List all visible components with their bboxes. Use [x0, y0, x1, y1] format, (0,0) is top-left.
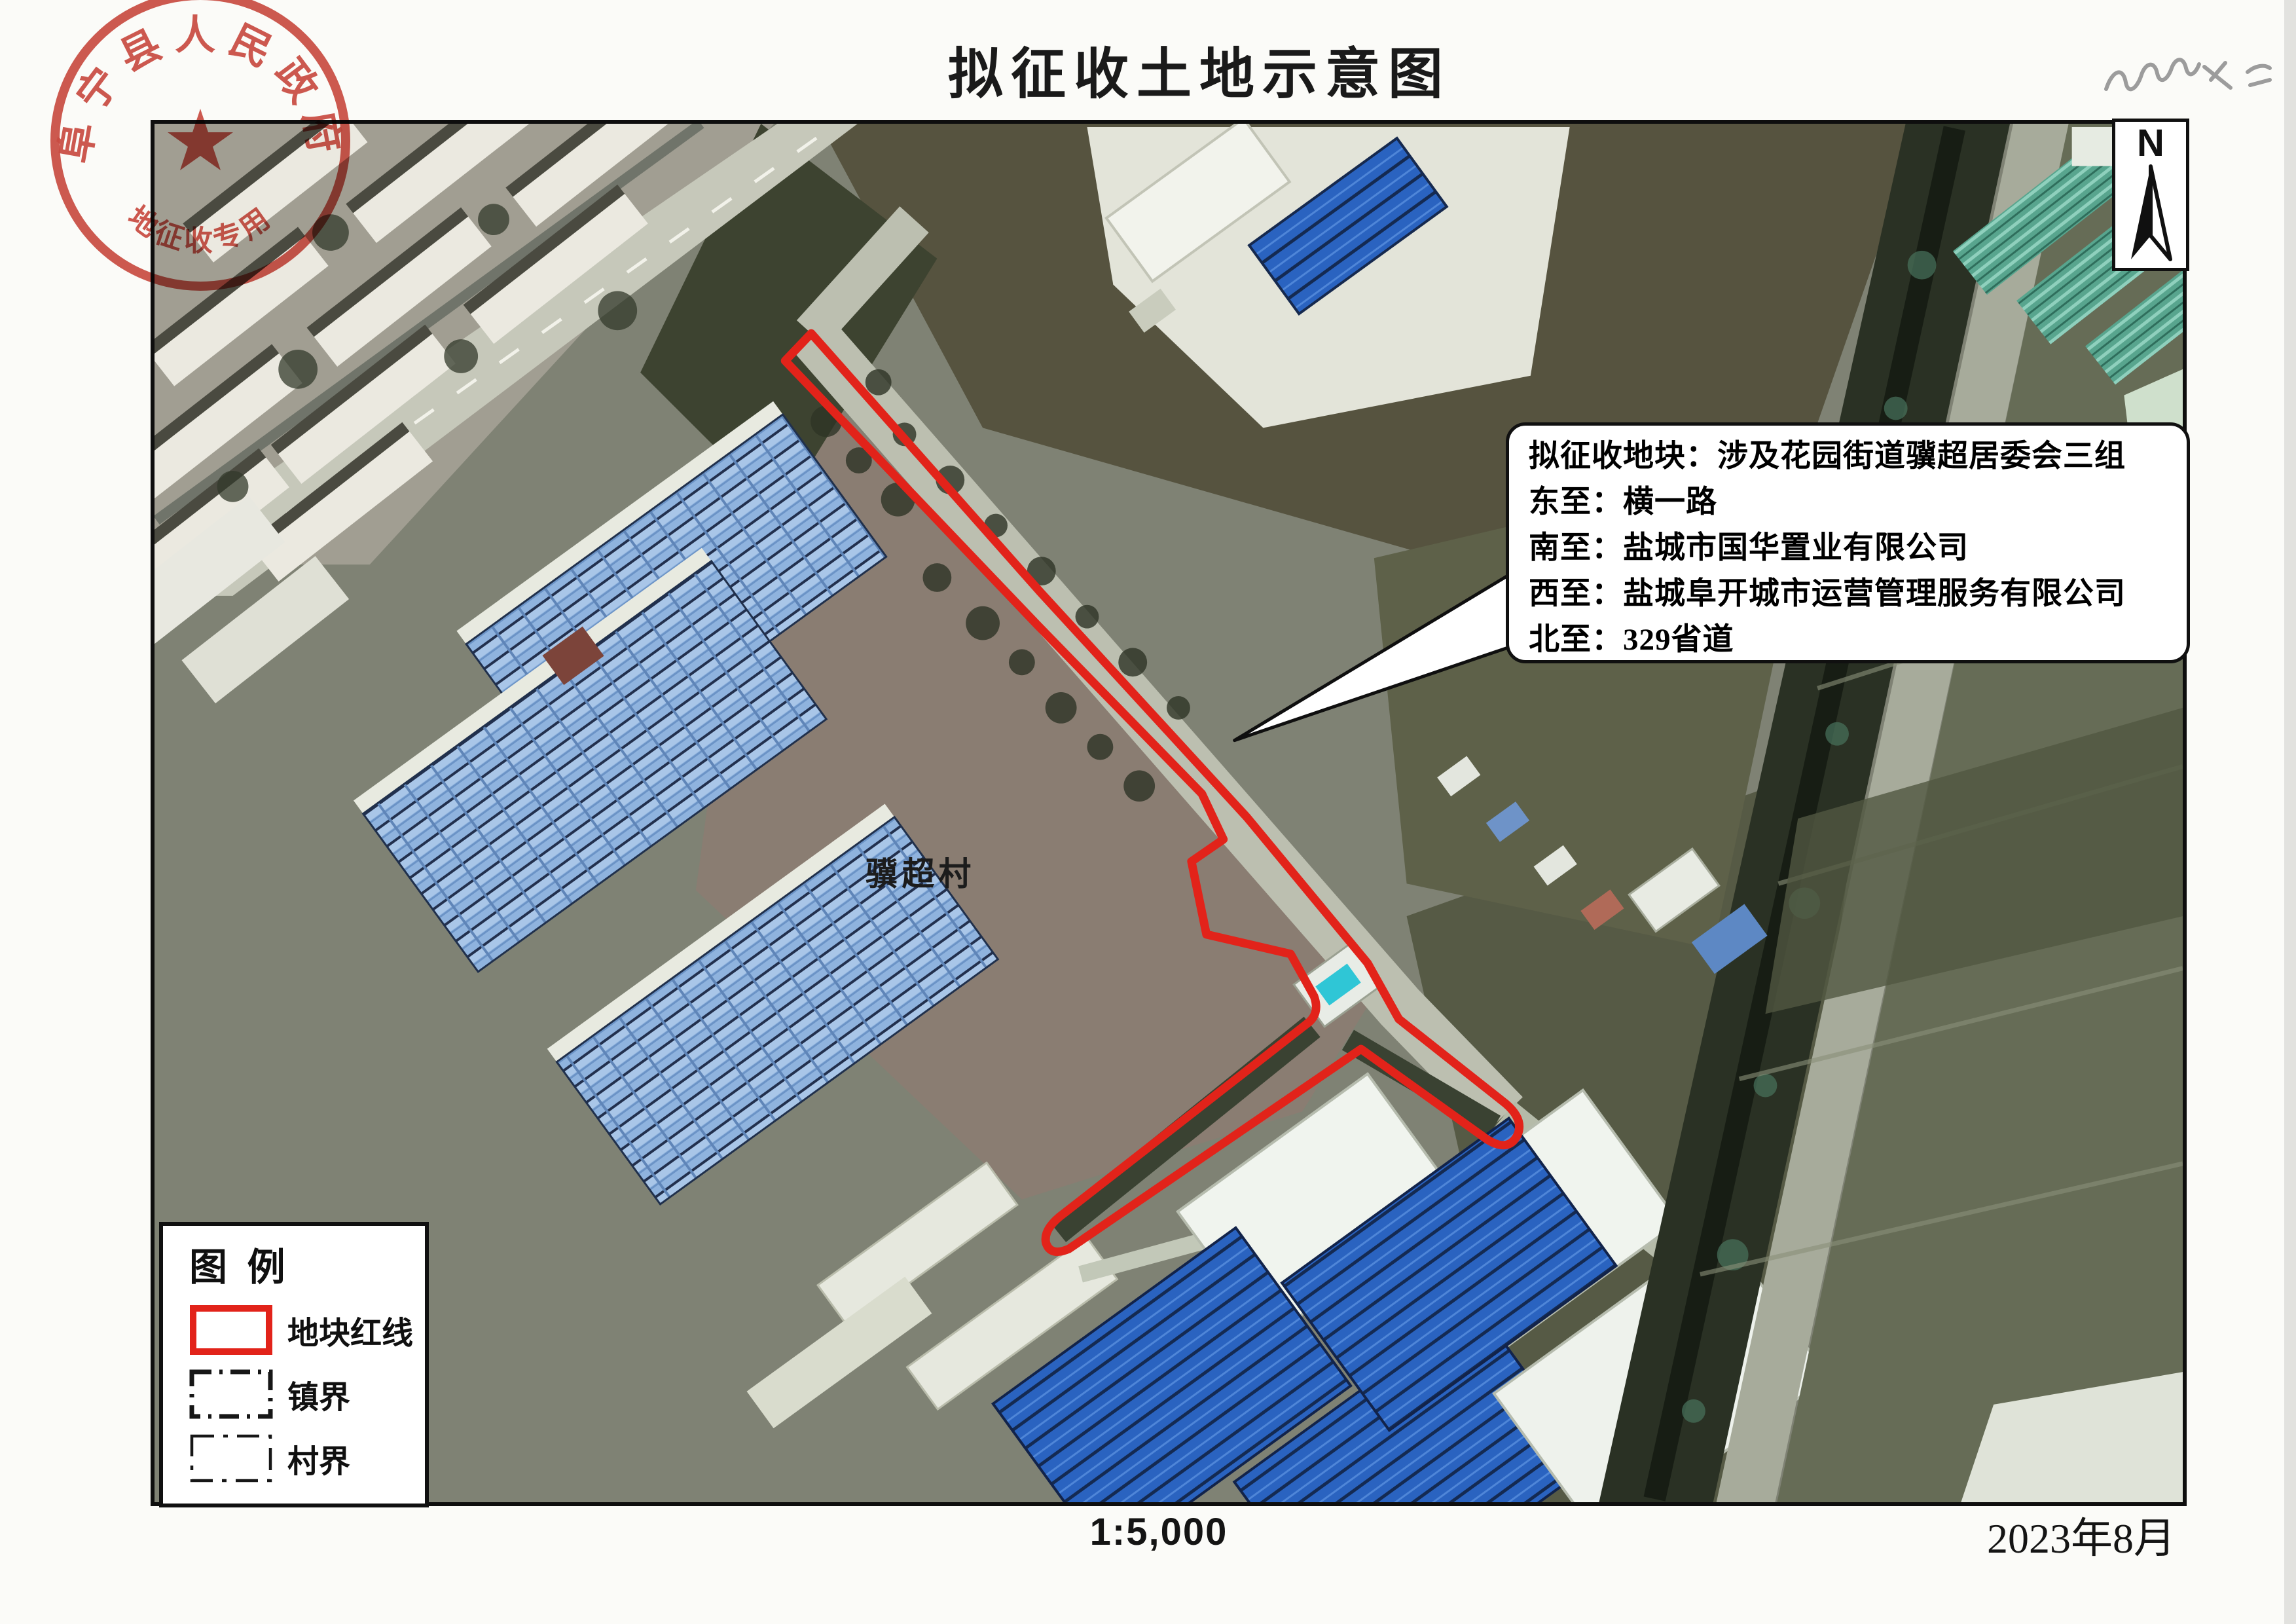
legend-item-label: 村界 — [287, 1435, 350, 1481]
town-boundary-swatch-icon — [189, 1369, 273, 1420]
legend-item-village-boundary: 村界 — [189, 1433, 425, 1484]
legend-item-label: 镇界 — [287, 1371, 350, 1417]
callout-line: 东至：横一路 — [1529, 479, 2180, 525]
handwritten-note — [2092, 38, 2296, 111]
map-scale: 1:5,000 — [1011, 1510, 1306, 1554]
north-label: N — [2137, 123, 2164, 164]
village-boundary-swatch-icon — [189, 1433, 273, 1484]
red-line-swatch-icon — [189, 1304, 273, 1356]
north-arrow: N — [2112, 119, 2189, 271]
legend-item-parcel-line: 地块红线 — [189, 1304, 425, 1356]
map-date: 2023年8月 — [1987, 1505, 2176, 1565]
satellite-image: 骥超村 — [155, 124, 2183, 1502]
legend-title: 图 例 — [189, 1236, 425, 1291]
village-label: 骥超村 — [866, 856, 975, 892]
page-title: 拟征收土地示意图 — [948, 30, 1451, 109]
callout-line: 西至：盐城阜开城市运营管理服务有限公司 — [1529, 571, 2180, 617]
callout-line: 拟征收地块：涉及花园街道骥超居委会三组 — [1529, 434, 2180, 479]
legend-item-label: 地块红线 — [287, 1307, 413, 1353]
parcel-callout: 拟征收地块：涉及花园街道骥超居委会三组 东至：横一路 南至：盐城市国华置业有限公… — [1506, 422, 2190, 663]
callout-line: 北至：329省道 — [1529, 617, 2180, 663]
legend-item-town-boundary: 镇界 — [189, 1369, 425, 1420]
legend: 图 例 地块红线 镇界 村界 — [159, 1222, 429, 1507]
scan-edge-shadow — [2284, 0, 2296, 1624]
north-arrow-icon — [2125, 164, 2176, 263]
satellite-map: 骥超村 — [151, 120, 2187, 1506]
callout-line: 南至：盐城市国华置业有限公司 — [1529, 525, 2180, 571]
